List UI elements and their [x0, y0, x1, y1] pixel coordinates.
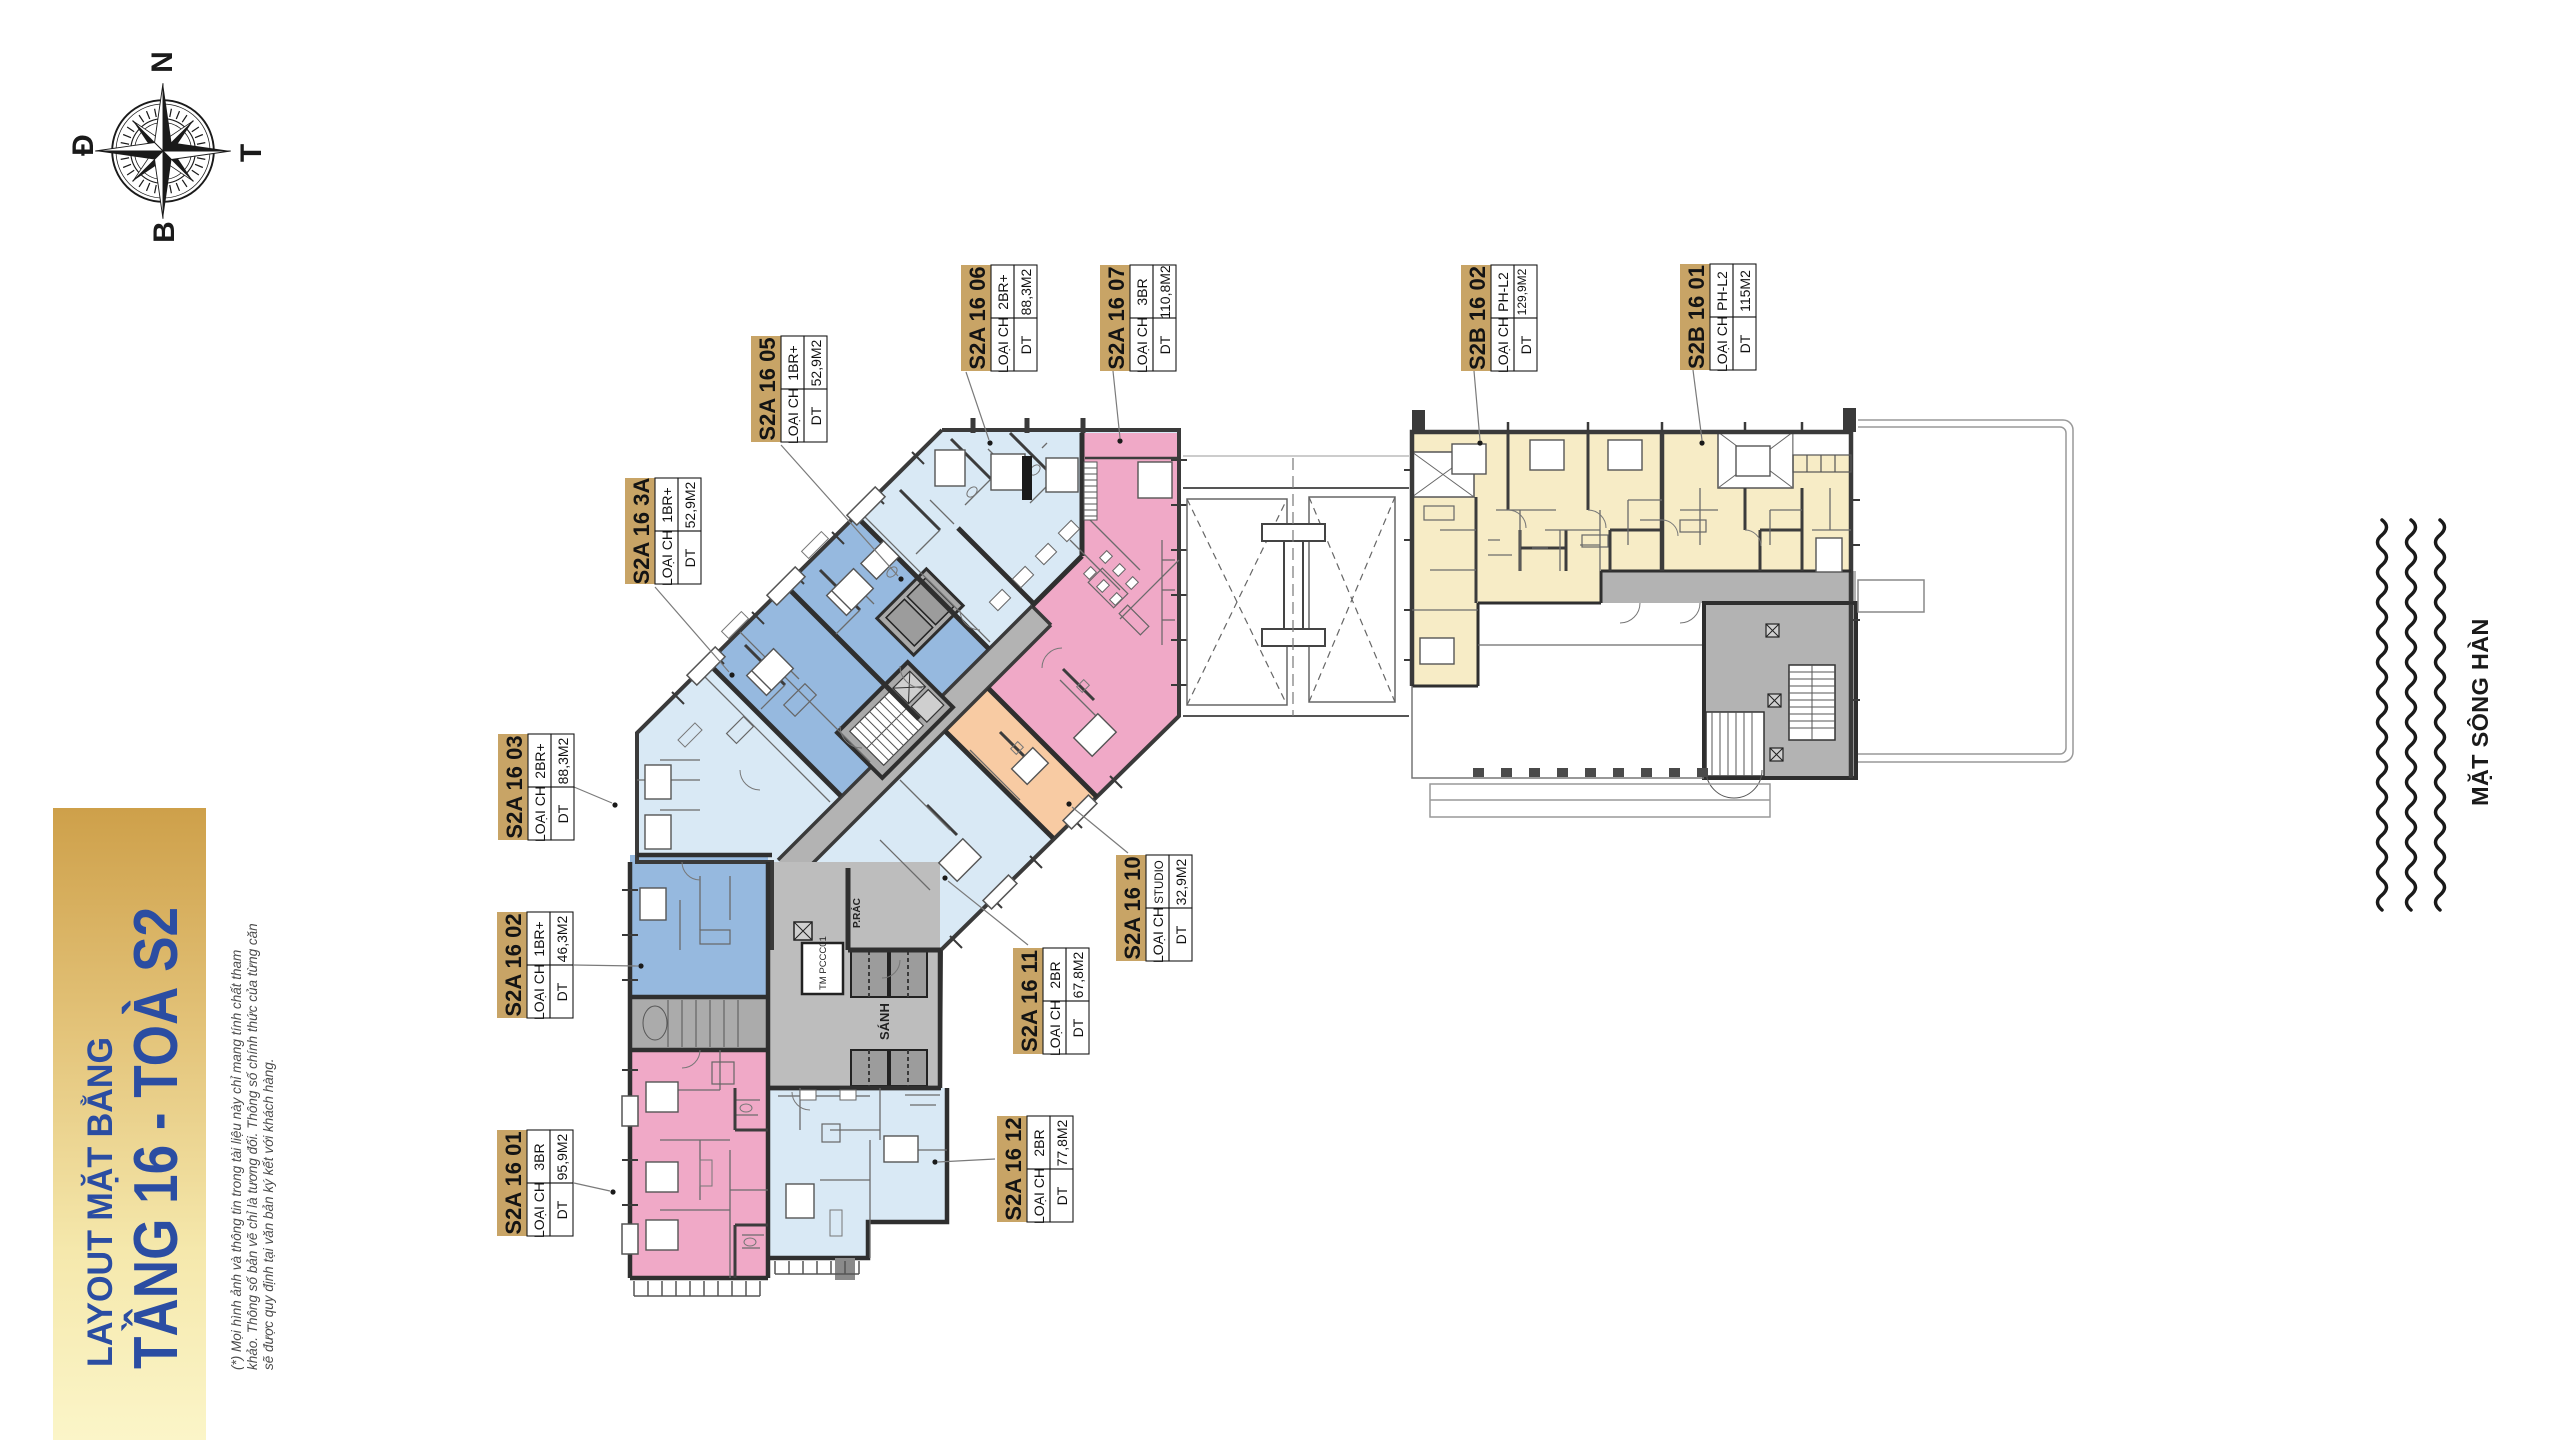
- svg-text:2BR: 2BR: [1047, 961, 1063, 988]
- svg-text:PH-L2: PH-L2: [1495, 272, 1511, 312]
- svg-text:LOẠI CH: LOẠI CH: [1047, 1000, 1063, 1056]
- svg-text:LOẠI CH: LOẠI CH: [1495, 317, 1511, 373]
- svg-text:S2A 16 02: S2A 16 02: [501, 913, 526, 1016]
- svg-text:DT: DT: [1173, 925, 1189, 944]
- svg-text:3BR: 3BR: [531, 1143, 547, 1170]
- svg-text:1BR+: 1BR+: [659, 487, 675, 522]
- svg-text:DT: DT: [1518, 335, 1534, 354]
- svg-text:129,9M2: 129,9M2: [1515, 268, 1529, 315]
- svg-text:MẶT SÔNG HÀN: MẶT SÔNG HÀN: [2466, 618, 2493, 806]
- svg-text:LOẠI CH: LOẠI CH: [531, 964, 547, 1020]
- svg-text:DT: DT: [1018, 335, 1034, 354]
- svg-text:DT: DT: [1737, 334, 1753, 353]
- svg-text:P.RÁC: P.RÁC: [850, 898, 863, 928]
- svg-text:88,3M2: 88,3M2: [555, 737, 571, 784]
- svg-text:115M2: 115M2: [1737, 270, 1753, 312]
- svg-text:1BR+: 1BR+: [785, 345, 801, 380]
- svg-text:S2A 16 3A: S2A 16 3A: [629, 477, 654, 584]
- svg-text:DT: DT: [554, 1200, 570, 1219]
- svg-text:S2A 16 06: S2A 16 06: [965, 266, 990, 369]
- svg-text:TM PCCC01: TM PCCC01: [818, 936, 829, 990]
- svg-text:32,9M2: 32,9M2: [1173, 858, 1189, 905]
- svg-text:67,8M2: 67,8M2: [1070, 951, 1086, 998]
- svg-text:LOẠI CH: LOẠI CH: [1031, 1168, 1047, 1224]
- svg-text:S2A 16 03: S2A 16 03: [502, 735, 527, 838]
- svg-text:2BR+: 2BR+: [995, 274, 1011, 309]
- svg-text:S2A 16 05: S2A 16 05: [755, 337, 780, 440]
- svg-text:STUDIO: STUDIO: [1154, 860, 1166, 904]
- svg-text:T: T: [235, 144, 268, 162]
- svg-text:DT: DT: [554, 982, 570, 1001]
- svg-text:110,8M2: 110,8M2: [1157, 265, 1173, 319]
- svg-text:DT: DT: [808, 406, 824, 425]
- svg-text:SÁNH: SÁNH: [877, 1003, 892, 1040]
- svg-text:S2A 16 01: S2A 16 01: [501, 1131, 526, 1234]
- svg-text:LOẠI CH: LOẠI CH: [532, 786, 548, 842]
- svg-text:S2B 16 01: S2B 16 01: [1684, 265, 1709, 369]
- svg-text:LOẠI CH: LOẠI CH: [659, 530, 675, 586]
- svg-text:2BR+: 2BR+: [532, 743, 548, 778]
- svg-text:DT: DT: [682, 548, 698, 567]
- svg-text:TẦNG 16 - TOÀ S2: TẦNG 16 - TOÀ S2: [122, 907, 191, 1369]
- svg-text:52,9M2: 52,9M2: [808, 339, 824, 386]
- svg-text:S2A 16 07: S2A 16 07: [1104, 266, 1129, 369]
- svg-text:88,3M2: 88,3M2: [1018, 268, 1034, 315]
- svg-text:DT: DT: [1157, 335, 1173, 354]
- svg-text:DT: DT: [1070, 1018, 1086, 1037]
- svg-text:LOẠI CH: LOẠI CH: [1714, 316, 1730, 372]
- svg-text:Đ: Đ: [67, 134, 100, 156]
- svg-text:95,9M2: 95,9M2: [554, 1133, 570, 1180]
- svg-text:PH-L2: PH-L2: [1714, 271, 1730, 311]
- svg-text:(*) Mọi hình ảnh và thông tin: (*) Mọi hình ảnh và thông tin trong tài …: [229, 950, 244, 1370]
- svg-text:52,9M2: 52,9M2: [682, 481, 698, 528]
- svg-text:N: N: [146, 51, 179, 73]
- svg-text:sẽ được quy định tại văn bản k: sẽ được quy định tại văn bản ký kết với …: [261, 1058, 276, 1370]
- svg-text:2BR: 2BR: [1031, 1129, 1047, 1156]
- svg-text:3BR: 3BR: [1134, 278, 1150, 305]
- svg-text:77,8M2: 77,8M2: [1054, 1119, 1070, 1166]
- svg-text:S2A 16 10: S2A 16 10: [1120, 856, 1145, 959]
- svg-text:LOẠI CH: LOẠI CH: [1150, 907, 1166, 963]
- svg-text:LOẠI CH: LOẠI CH: [531, 1182, 547, 1238]
- svg-text:1BR+: 1BR+: [531, 921, 547, 956]
- svg-text:B: B: [148, 221, 181, 243]
- svg-text:S2B 16 02: S2B 16 02: [1465, 266, 1490, 370]
- svg-text:S2A 16 12: S2A 16 12: [1001, 1117, 1026, 1220]
- svg-text:DT: DT: [555, 804, 571, 823]
- svg-text:DT: DT: [1054, 1186, 1070, 1205]
- svg-text:LOẠI CH: LOẠI CH: [995, 317, 1011, 373]
- svg-text:LOẠI CH: LOẠI CH: [785, 388, 801, 444]
- svg-text:LAYOUT MẶT BẰNG: LAYOUT MẶT BẰNG: [80, 1037, 120, 1367]
- svg-text:46,3M2: 46,3M2: [554, 915, 570, 962]
- svg-text:S2A 16 11: S2A 16 11: [1017, 950, 1042, 1052]
- svg-text:LOẠI CH: LOẠI CH: [1134, 317, 1150, 373]
- svg-text:khảo. Thông số bản vẽ chỉ là t: khảo. Thông số bản vẽ chỉ là tương đối. …: [245, 923, 260, 1370]
